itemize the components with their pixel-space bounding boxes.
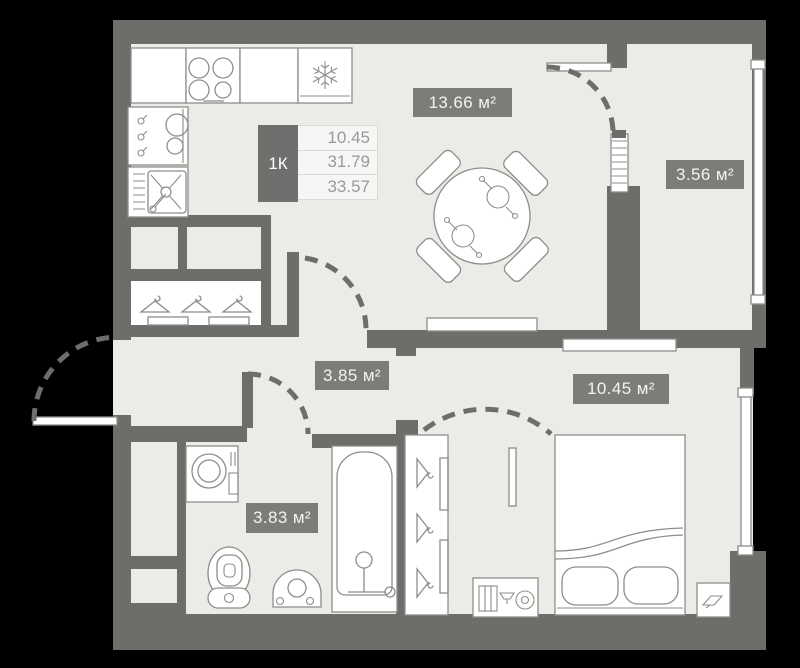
- washbasin-icon: [186, 446, 238, 502]
- legend-area-row: 33.57: [298, 174, 378, 200]
- kitchen-sink-icon: [128, 167, 188, 217]
- room-area-badge-bedroom: 10.45 м²: [573, 374, 669, 404]
- room-area-badge-kitchen-living: 13.66 м²: [413, 88, 512, 117]
- toilet-icon: [208, 547, 250, 608]
- wardrobe: [131, 281, 261, 325]
- vent-box: [697, 583, 730, 617]
- bed: [555, 435, 685, 615]
- living-console: [427, 318, 537, 331]
- entrance-door: [33, 337, 118, 425]
- floorplan-page: { "palette": { "floor": "#EDEBE8", "wall…: [0, 0, 800, 668]
- bathtub-icon: [332, 446, 397, 612]
- washer-icon: [128, 107, 188, 165]
- dresser: [473, 578, 538, 617]
- entrance-door-arc: [34, 337, 118, 421]
- room-area-badge-bathroom: 3.83 м²: [246, 503, 318, 533]
- legend-area-row: 31.79: [298, 150, 378, 176]
- apartment-legend: 1К 10.45 31.79 33.57: [258, 125, 378, 202]
- apartment-type-cell: 1К: [258, 125, 298, 202]
- room-area-badge-balcony: 3.56 м²: [666, 160, 744, 189]
- floor-plan: [0, 0, 800, 668]
- dining-table: [434, 168, 530, 264]
- dining-set: [414, 148, 551, 285]
- apartment-areas: 10.45 31.79 33.57: [298, 125, 378, 202]
- kitchen-counter: [131, 48, 352, 103]
- legend-area-row: 10.45: [298, 125, 378, 151]
- room-area-badge-hallway: 3.85 м²: [315, 361, 389, 390]
- bedroom-closet: [405, 435, 448, 615]
- bedroom-console: [563, 339, 676, 351]
